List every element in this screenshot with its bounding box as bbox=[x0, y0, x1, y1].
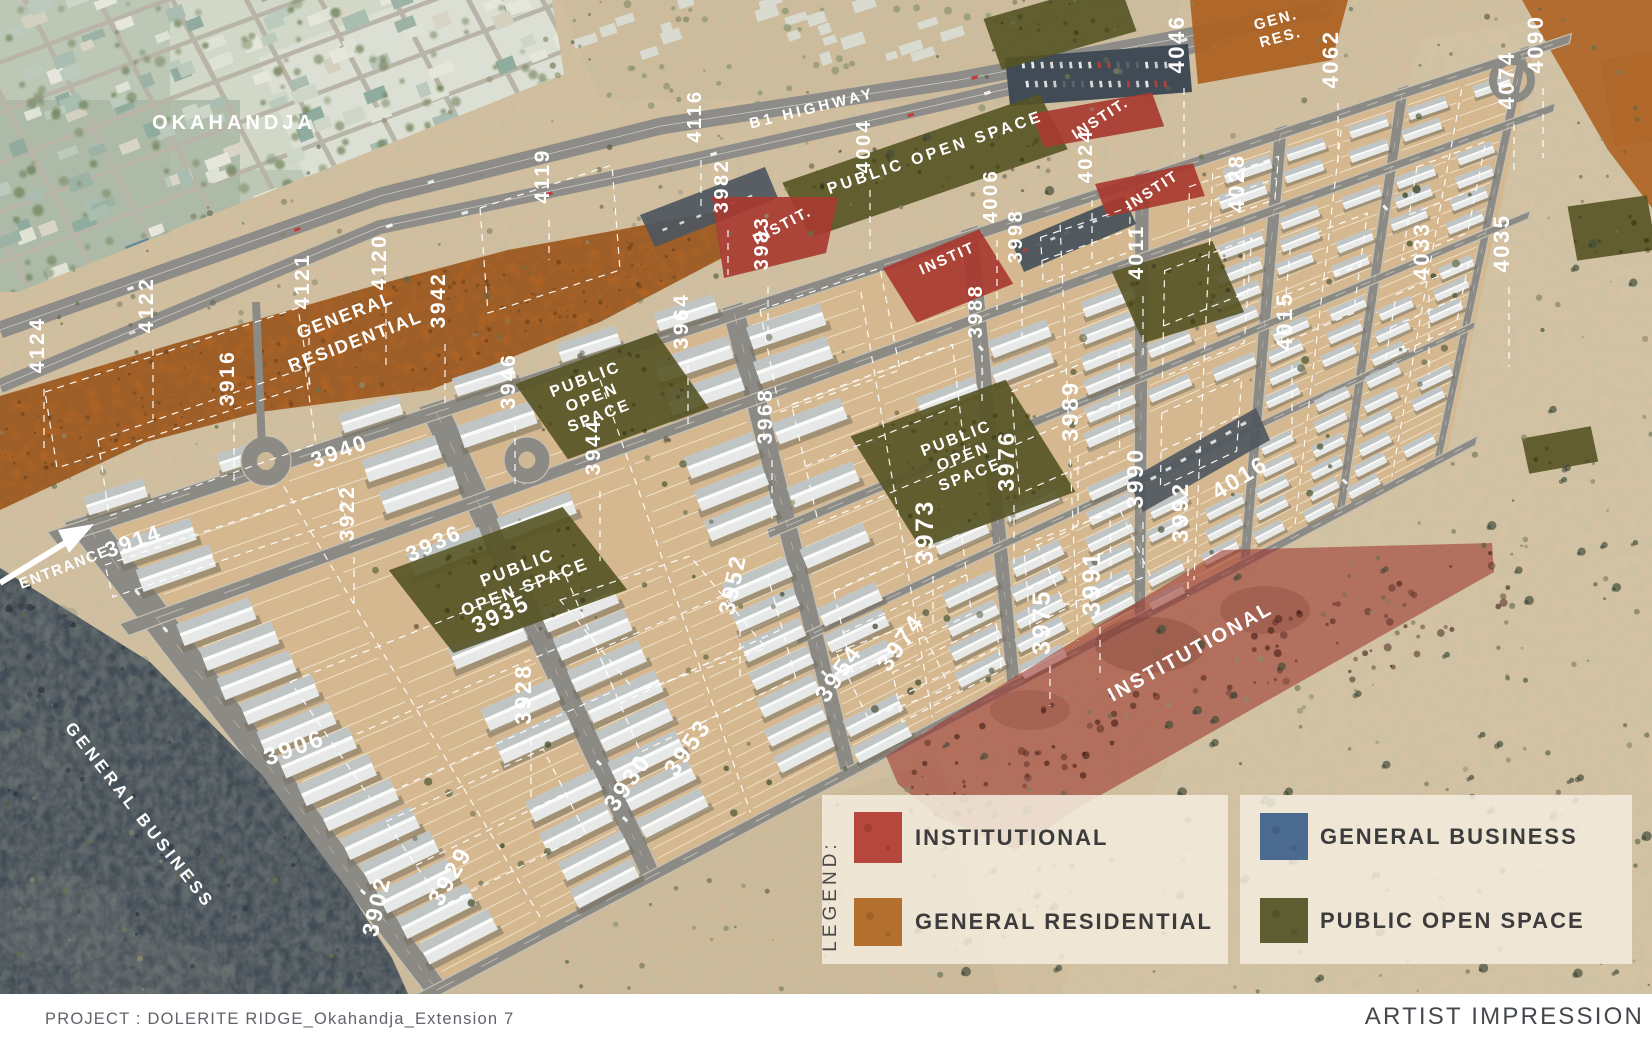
svg-text:3922: 3922 bbox=[336, 485, 359, 542]
svg-text:3946: 3946 bbox=[497, 353, 520, 410]
svg-text:4033: 4033 bbox=[1409, 222, 1434, 281]
svg-text:4119: 4119 bbox=[531, 148, 554, 204]
svg-text:ARTIST IMPRESSION: ARTIST IMPRESSION bbox=[1365, 1003, 1644, 1030]
svg-text:GENERAL BUSINESS: GENERAL BUSINESS bbox=[1320, 824, 1578, 849]
svg-text:4006: 4006 bbox=[980, 169, 1002, 224]
svg-text:4046: 4046 bbox=[1164, 15, 1189, 74]
svg-text:4120: 4120 bbox=[368, 234, 391, 291]
svg-text:4062: 4062 bbox=[1318, 30, 1343, 89]
svg-text:3968: 3968 bbox=[754, 388, 777, 445]
svg-text:INSTITUTIONAL: INSTITUTIONAL bbox=[915, 825, 1108, 850]
svg-text:3942: 3942 bbox=[427, 272, 450, 329]
svg-text:PROJECT : DOLERITE RIDGE_Okaha: PROJECT : DOLERITE RIDGE_Okahandja_Exten… bbox=[45, 1010, 514, 1028]
svg-text:GENERAL RESIDENTIAL: GENERAL RESIDENTIAL bbox=[915, 909, 1213, 934]
svg-text:4035: 4035 bbox=[1489, 214, 1514, 273]
svg-text:4124: 4124 bbox=[26, 317, 49, 374]
svg-text:4015: 4015 bbox=[1272, 292, 1297, 351]
svg-text:4028: 4028 bbox=[1224, 154, 1249, 213]
svg-text:3928: 3928 bbox=[510, 663, 536, 724]
svg-text:3991: 3991 bbox=[1078, 550, 1106, 616]
svg-text:4090: 4090 bbox=[1523, 15, 1548, 74]
svg-text:OKAHANDJA: OKAHANDJA bbox=[152, 112, 316, 134]
svg-text:4011: 4011 bbox=[1125, 224, 1148, 280]
svg-text:4116: 4116 bbox=[684, 89, 706, 142]
svg-text:3998: 3998 bbox=[1005, 209, 1027, 264]
svg-text:3916: 3916 bbox=[216, 350, 239, 407]
svg-text:LEGEND:: LEGEND: bbox=[820, 840, 841, 951]
svg-text:3964: 3964 bbox=[670, 293, 693, 350]
svg-text:3990: 3990 bbox=[1122, 447, 1148, 508]
svg-text:3992: 3992 bbox=[1167, 481, 1193, 542]
svg-text:4074: 4074 bbox=[1494, 51, 1519, 110]
svg-text:3989: 3989 bbox=[1057, 380, 1083, 441]
svg-text:3975: 3975 bbox=[1028, 589, 1056, 655]
svg-text:PUBLIC OPEN SPACE: PUBLIC OPEN SPACE bbox=[1320, 908, 1585, 933]
svg-text:3973: 3973 bbox=[911, 499, 939, 565]
svg-text:3982: 3982 bbox=[711, 159, 733, 214]
svg-text:3988: 3988 bbox=[965, 284, 987, 339]
svg-text:4122: 4122 bbox=[135, 277, 158, 334]
svg-text:4121: 4121 bbox=[291, 253, 314, 310]
